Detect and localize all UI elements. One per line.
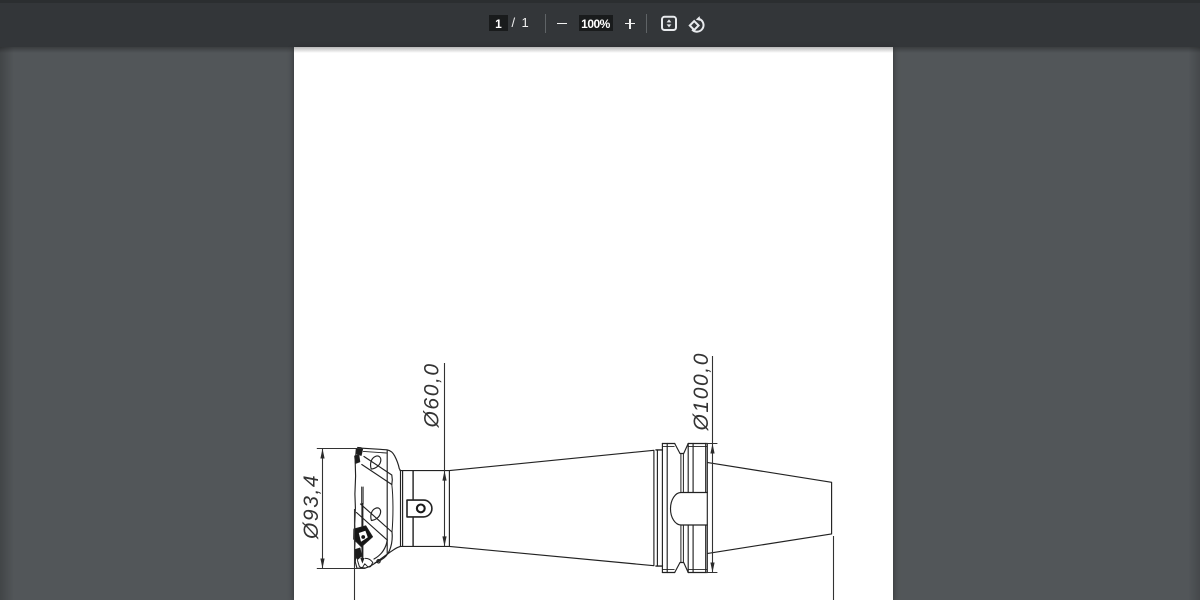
svg-text:Ø100,0: Ø100,0 (690, 352, 713, 432)
svg-text:Ø93,4: Ø93,4 (300, 474, 323, 540)
svg-text:Ø60,0: Ø60,0 (420, 362, 443, 428)
